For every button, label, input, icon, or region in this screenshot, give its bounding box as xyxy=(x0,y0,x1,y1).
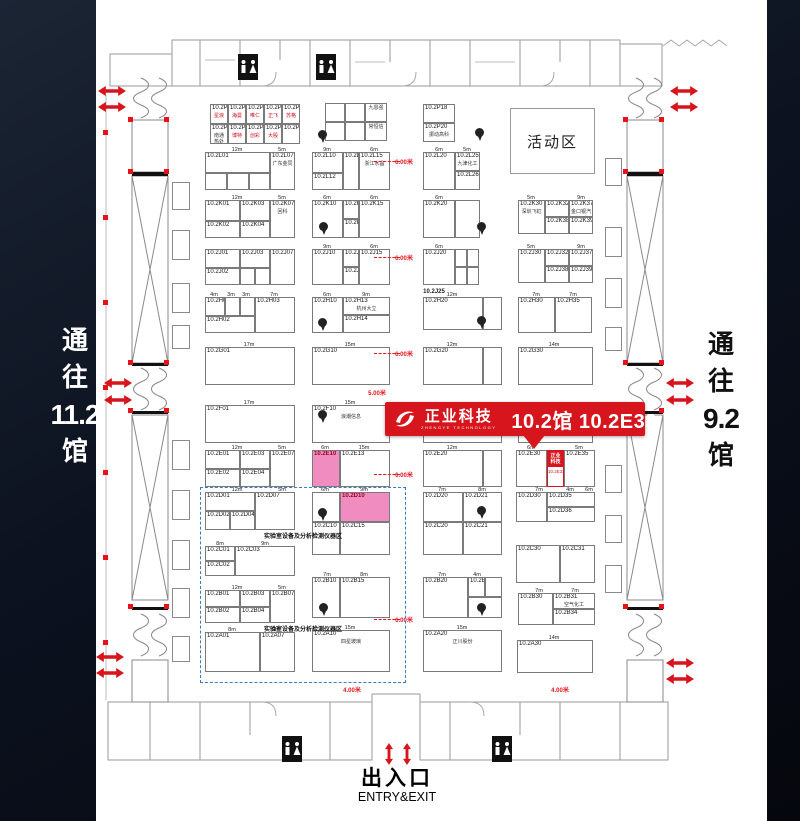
booth-company: 广东金同 xyxy=(271,161,294,167)
booth-id: 10.2F01 xyxy=(206,406,294,413)
booth-id: 10.2H35 xyxy=(556,298,591,305)
booth-id: 10.2P03 xyxy=(229,105,245,112)
booth-id: 10.2G01 xyxy=(206,348,294,355)
booth-10.2H01[interactable]: 10.2H01 xyxy=(205,297,225,316)
booth-10.2J39[interactable]: 10.2J39 xyxy=(569,266,593,283)
wall-marker xyxy=(128,360,133,365)
wall-marker xyxy=(164,408,169,413)
booth-10.2J01[interactable]: 10.2J01 xyxy=(205,249,240,268)
booth-id: 10.2K14 xyxy=(344,220,358,227)
booth-id: 10.2J03 xyxy=(241,250,269,257)
booth-10.2C31[interactable]: 10.2C31 xyxy=(560,545,595,583)
booth-10.2K04[interactable]: 10.2K04 xyxy=(240,221,270,238)
wall-marker xyxy=(128,408,133,413)
banner-pointer xyxy=(523,435,545,449)
booth-10.2B34[interactable]: 10.2B34 xyxy=(553,609,595,625)
booth-10.2H14[interactable]: 10.2H14 xyxy=(343,315,390,333)
booth-id: 10.2E02 xyxy=(206,470,239,477)
booth-id: 10.2J32 xyxy=(546,250,568,257)
booth-id: 10.2K02 xyxy=(206,222,239,229)
booth-10.2D35[interactable]: 10.2D35 xyxy=(547,492,595,507)
booth-id: 10.2J02 xyxy=(206,269,239,276)
booth-10.2E01[interactable]: 10.2E01 xyxy=(205,450,240,469)
booth-id: 10.2E35 xyxy=(565,451,594,458)
booth-id: 10.2P05 xyxy=(247,105,263,112)
booth-10.2A20[interactable]: 10.2A20正川股份 xyxy=(423,630,502,672)
booth-id: 10.2K15 xyxy=(360,201,389,208)
booth-unlabeled[interactable] xyxy=(172,283,190,313)
booth-10.2P10[interactable]: 10.2P10 xyxy=(282,124,300,144)
booth-10.2J10[interactable]: 10.2J10 xyxy=(312,249,343,285)
booth-10.2L13[interactable]: 10.2L13 xyxy=(343,152,359,190)
booth-company: 空气化工 xyxy=(554,602,594,608)
booth-unlabeled[interactable] xyxy=(172,182,190,210)
booth-10.2K37[interactable]: 10.2K37金口银汽 xyxy=(569,200,593,217)
booth-10.2L25[interactable]: 10.2L25九津化工 xyxy=(455,152,480,171)
wall-marker xyxy=(164,169,169,174)
booth-10.2P08[interactable]: 10.2P08大殷 xyxy=(264,124,282,144)
booth-company: 深圳飞虹 xyxy=(519,209,544,215)
booth-10.2E20[interactable]: 10.2E20 xyxy=(423,450,483,487)
booth-id: 10.2A30 xyxy=(518,641,592,648)
booth-unlabeled[interactable] xyxy=(605,515,622,543)
wall-marker xyxy=(103,215,108,220)
booth-10.2H20[interactable]: 10.2H20 xyxy=(423,297,483,330)
booth-id: 10.2E04 xyxy=(241,470,269,477)
booth-id: 10.2C31 xyxy=(561,546,594,553)
pillar-marker-icon xyxy=(477,222,486,231)
booth-10.2P18[interactable]: 10.2P18 xyxy=(423,104,455,123)
booth-id: 10.2H10 xyxy=(313,298,342,305)
restroom-icon xyxy=(492,736,512,762)
booth-id: 10.2P09 xyxy=(283,105,299,112)
pillar-marker-icon xyxy=(318,318,327,327)
booth-10.2K02[interactable]: 10.2K02 xyxy=(205,221,240,238)
booth-id: 10.2L13 xyxy=(344,153,358,160)
booth-company: 回科 xyxy=(271,209,294,215)
booth-unlabeled[interactable] xyxy=(172,636,190,662)
pillar-marker-icon xyxy=(318,130,327,139)
booth-id: 10.2J01 xyxy=(206,250,239,257)
booth-id: 10.2C20 xyxy=(424,523,462,530)
booth-id: 10.2H30 xyxy=(519,298,554,305)
aisle-dash xyxy=(374,619,400,620)
aisle-dash xyxy=(374,474,400,475)
booth-id: 10.2E01 xyxy=(206,451,239,458)
booth-id: 10.2D36 xyxy=(548,508,594,515)
booth-unlabeled[interactable] xyxy=(605,158,622,186)
booth-id: 10.2H14 xyxy=(344,316,389,323)
pillar-marker-icon xyxy=(318,410,327,419)
booth-id: 10.2P01 xyxy=(211,105,227,112)
booth-company: 正川股份 xyxy=(424,639,501,645)
booth-10.2L20[interactable]: 10.2L20 xyxy=(423,152,455,190)
booth-company: 星浪 xyxy=(211,113,227,119)
booth-unlabeled[interactable] xyxy=(325,122,345,141)
booth-unlabeled[interactable] xyxy=(172,230,190,260)
booth-id: 10.2G30 xyxy=(519,348,592,355)
booth-id: 10.2C30 xyxy=(517,546,559,553)
highlight-booth-name: 正业 科技 xyxy=(548,451,563,467)
booth-id: 10.2C21 xyxy=(464,523,501,530)
booth-id: 10.2K10 xyxy=(313,201,342,208)
booth-company: 杭州大立 xyxy=(344,306,389,312)
booth-id: 10.2L12 xyxy=(313,174,342,181)
booth-unlabeled[interactable] xyxy=(172,325,190,349)
booth-company: 九津化工 xyxy=(456,161,479,167)
wall-marker xyxy=(103,640,108,645)
booth-id: 10.2J30 xyxy=(519,250,544,257)
booth-10.2L10[interactable]: 10.2L10 xyxy=(312,152,343,173)
booth-10.2P03[interactable]: 10.2P03海曼 xyxy=(228,104,246,124)
wall-marker xyxy=(103,555,108,560)
wall-marker xyxy=(623,604,628,609)
booth-id: 10.2P02 xyxy=(211,125,227,132)
booth-id: 10.2H20 xyxy=(424,298,482,305)
booth-company: 正飞 xyxy=(265,113,281,119)
booth-10.2J30[interactable]: 10.2J30 xyxy=(518,249,545,283)
booth-unlabeled[interactable] xyxy=(485,577,502,597)
booth-id: 10.2J15 xyxy=(360,250,389,257)
booth-id: 10.2L20 xyxy=(424,153,454,160)
booth-unlabeled[interactable] xyxy=(605,465,622,493)
highlight-booth-id: 10.2E33 xyxy=(548,469,563,475)
booth-unlabeled[interactable]: 常恒信 xyxy=(365,122,387,141)
booth-10.2H10[interactable]: 10.2H10 xyxy=(312,297,343,333)
booth-10.2D30[interactable]: 10.2D30 xyxy=(516,492,547,522)
booth-id: 10.2J07 xyxy=(271,250,294,257)
booth-10.2K10[interactable]: 10.2K10 xyxy=(312,200,343,238)
wall-marker xyxy=(164,117,169,122)
booth-10.2J12[interactable]: 10.2J12 xyxy=(343,249,359,267)
booth-unlabeled[interactable] xyxy=(345,122,365,141)
booth-10.2E30[interactable]: 10.2E30 xyxy=(516,450,547,487)
booth-id: 10.2P06 xyxy=(247,125,263,132)
booth-company: 常恒信 xyxy=(366,124,386,130)
booth-10.2P06[interactable]: 10.2P06创彩 xyxy=(246,124,264,144)
booth-10.2B30[interactable]: 10.2B30 xyxy=(518,593,553,625)
wall-marker xyxy=(659,604,664,609)
booth-id: 10.2E03 xyxy=(241,451,269,458)
booth-company: 振动高科 xyxy=(424,132,454,138)
booth-id: 10.2H02 xyxy=(206,317,254,324)
booth-10.2J03[interactable]: 10.2J03 xyxy=(240,249,270,268)
booth-unlabeled[interactable] xyxy=(225,297,240,316)
booth-id: 10.2P04 xyxy=(229,125,245,132)
booth-unlabeled[interactable]: 九恩强 xyxy=(365,103,387,122)
booth-unlabeled[interactable] xyxy=(483,347,502,385)
booth-id: 10.2P20 xyxy=(424,124,454,131)
booth-unlabeled[interactable] xyxy=(483,450,502,487)
booth-unlabeled[interactable] xyxy=(227,173,249,190)
pillar-marker-icon xyxy=(318,508,327,517)
booth-unlabeled[interactable] xyxy=(172,540,190,570)
booth-unlabeled[interactable] xyxy=(605,565,622,593)
booth-id: 10.2D20 xyxy=(424,493,462,500)
booth-id: 10.2K32 xyxy=(546,201,568,208)
booth-id: 10.2L15 xyxy=(360,153,389,160)
booth-10.2P07[interactable]: 10.2P07正飞 xyxy=(264,104,282,124)
restroom-icon xyxy=(316,54,336,80)
booth-id: 10.2L07 xyxy=(271,153,294,160)
booth-10.2E35[interactable]: 10.2E35 xyxy=(564,450,595,487)
booth-company: 海曼 xyxy=(229,113,245,119)
booth-10.2J14[interactable]: 10.2J14 xyxy=(343,267,359,285)
booth-id: 10.2J37 xyxy=(570,250,592,257)
wall-marker xyxy=(128,169,133,174)
booth-10.2P20[interactable]: 10.2P20振动高科 xyxy=(423,123,455,142)
wall-marker xyxy=(103,300,108,305)
banner-hall-booth: 10.2馆 10.2E33 xyxy=(511,405,657,434)
wall-marker xyxy=(103,385,108,390)
booth-company: 唯仁 xyxy=(247,113,263,119)
booth-10.2K01[interactable]: 10.2K01 xyxy=(205,200,240,221)
booth-id: 10.2E30 xyxy=(517,451,546,458)
exhibition-floorplan: 10.2P01星浪10.2P03海曼10.2P05唯仁10.2P07正飞10.2… xyxy=(0,0,800,821)
booth-10.2K03[interactable]: 10.2K03 xyxy=(240,200,270,221)
restroom-icon xyxy=(238,54,258,80)
booth-10.2E04[interactable]: 10.2E04 xyxy=(240,469,270,487)
booth-10.2A30[interactable]: 10.2A30 xyxy=(517,640,593,673)
booth-company: 博特 xyxy=(229,133,245,139)
booth-id: 10.2K39 xyxy=(570,218,592,225)
wall-marker xyxy=(164,360,169,365)
booth-10.2B22[interactable]: 10.2B22 xyxy=(468,577,485,597)
wall-marker xyxy=(659,360,664,365)
aisle-dash xyxy=(374,161,400,162)
booth-10.2L07[interactable]: 10.2L07广东金同 xyxy=(270,152,295,190)
aisle-dash xyxy=(374,257,400,258)
booth-10.2H02[interactable]: 10.2H02 xyxy=(205,316,255,333)
booth-id: 10.2H03 xyxy=(256,298,294,305)
booth-company: 大殷 xyxy=(265,133,281,139)
booth-company: 苏格 xyxy=(283,113,299,119)
booth-10.2K14[interactable]: 10.2K14 xyxy=(343,219,359,238)
booth-unlabeled[interactable] xyxy=(605,278,622,308)
booth-id: 10.2L10 xyxy=(313,153,342,160)
booth-10.2J38[interactable]: 10.2J38 xyxy=(545,266,569,283)
booth-10.2K07[interactable]: 10.2K07回科 xyxy=(270,200,295,238)
to-hall-11-2-label: 通 往 11.2 馆 xyxy=(50,322,100,470)
booth-10.2K38[interactable]: 10.2K38 xyxy=(545,217,569,234)
booth-10.2H13[interactable]: 10.2H13杭州大立 xyxy=(343,297,390,315)
booth-unlabeled[interactable] xyxy=(455,267,467,285)
booth-unlabeled[interactable] xyxy=(172,440,190,470)
booth-10.2P01[interactable]: 10.2P01星浪 xyxy=(210,104,228,124)
booth-unlabeled[interactable] xyxy=(483,297,502,330)
brand-block: 正业科技 ZHENGYE TECHNOLOGY xyxy=(421,409,496,430)
booth-id: 10.2J39 xyxy=(570,267,592,274)
booth-id: 10.2E10 xyxy=(313,451,339,458)
booth-10.2B20[interactable]: 10.2B20 xyxy=(423,577,468,618)
booth-10.2J37[interactable]: 10.2J37 xyxy=(569,249,593,266)
booth-10.2E03[interactable]: 10.2E03 xyxy=(240,450,270,469)
booth-id: 10.2H01 xyxy=(206,298,224,305)
booth-id: 10.2K01 xyxy=(206,201,239,208)
booth-id: 10.2P08 xyxy=(265,125,281,132)
booth-id: 10.2J14 xyxy=(344,268,358,275)
booth-10.2P02[interactable]: 10.2P02南通热处 xyxy=(210,124,228,144)
booth-id: 10.2D30 xyxy=(517,493,546,500)
booth-id: 10.2P10 xyxy=(283,125,299,132)
booth-id: 10.2K04 xyxy=(241,222,269,229)
pillar-marker-icon xyxy=(319,603,328,612)
booth-10.2P05[interactable]: 10.2P05唯仁 xyxy=(246,104,264,124)
booth-id: 10.2B34 xyxy=(554,610,594,617)
wall-marker xyxy=(103,470,108,475)
wall-marker xyxy=(128,604,133,609)
booth-10.2H03[interactable]: 10.2H03 xyxy=(255,297,295,333)
booth-id: 10.2K03 xyxy=(241,201,269,208)
booth-10.2K39[interactable]: 10.2K39 xyxy=(569,217,593,234)
booth-10.2H30[interactable]: 10.2H30 xyxy=(518,297,555,333)
booth-10.2E13[interactable]: 10.2E13 xyxy=(340,450,390,487)
booth-10.2H35[interactable]: 10.2H35 xyxy=(555,297,592,333)
booth-10.2G20[interactable]: 10.2G20 xyxy=(423,347,483,385)
booth-company: 南通热处 xyxy=(211,133,227,144)
booth-id: 10.2K07 xyxy=(271,201,294,208)
booth-10.2D36[interactable]: 10.2D36 xyxy=(547,507,595,522)
booth-unlabeled[interactable] xyxy=(172,588,190,618)
booth-10.2P04[interactable]: 10.2P04博特 xyxy=(228,124,246,144)
booth-10.2J15[interactable]: 10.2J15 xyxy=(359,249,390,285)
booth-10.2K20[interactable]: 10.2K20 xyxy=(423,200,455,238)
booth-id: 10.2J38 xyxy=(546,267,568,274)
booth-id: 10.2A20 xyxy=(424,631,501,638)
booth-id: 10.2L26 xyxy=(456,172,479,179)
booth-unlabeled[interactable] xyxy=(255,268,270,285)
booth-10.2E10[interactable]: 10.2E10 xyxy=(312,450,340,487)
booth-id: 10.2K13 xyxy=(344,201,358,208)
booth-10.2L26[interactable]: 10.2L26 xyxy=(455,171,480,190)
booth-id: 10.2L01 xyxy=(206,153,269,160)
wall-marker xyxy=(128,117,133,122)
booth-unlabeled[interactable] xyxy=(605,227,622,257)
booth-id: 10.2J10 xyxy=(313,250,342,257)
booth-id: 10.2K20 xyxy=(424,201,454,208)
booth-id: 10.2E07 xyxy=(271,451,294,458)
wall-marker xyxy=(623,117,628,122)
booth-unlabeled[interactable] xyxy=(249,173,270,190)
pillar-marker-icon xyxy=(477,506,486,515)
booth-id: 10.2B30 xyxy=(519,594,552,601)
zhengye-banner[interactable]: 正业科技 ZHENGYE TECHNOLOGY 10.2馆 10.2E33 xyxy=(385,402,645,436)
wall-marker xyxy=(659,117,664,122)
restroom-icon xyxy=(282,736,302,762)
booth-unlabeled[interactable] xyxy=(345,103,365,122)
booth-unlabeled[interactable] xyxy=(325,103,345,122)
pillar-marker-icon xyxy=(475,128,484,137)
booth-10.2E02[interactable]: 10.2E02 xyxy=(205,469,240,487)
booth-id: 10.2P18 xyxy=(424,105,454,112)
zhengye-logo-icon xyxy=(393,407,417,431)
pillar-marker-icon xyxy=(319,222,328,231)
wall-marker xyxy=(659,408,664,413)
booth-id: 10.2P07 xyxy=(265,105,281,112)
booth-id: 10.2K30 xyxy=(519,201,544,208)
booth-id: 10.2G20 xyxy=(424,348,482,355)
booth-10.2K32[interactable]: 10.2K32 xyxy=(545,200,569,217)
brand-name-en: ZHENGYE TECHNOLOGY xyxy=(421,426,496,430)
booth-10.2G30[interactable]: 10.2G30 xyxy=(518,347,593,385)
pillar-marker-icon xyxy=(477,603,486,612)
booth-unlabeled[interactable] xyxy=(605,327,622,351)
booth-unlabeled[interactable] xyxy=(455,200,480,238)
wall-marker xyxy=(659,169,664,174)
booth-10.2E33[interactable]: 正业 科技10.2E33 xyxy=(547,450,564,487)
booth-unlabeled[interactable] xyxy=(240,268,255,285)
booth-company: 金口银汽 xyxy=(570,209,592,215)
booth-id: 10.2B31 xyxy=(554,594,594,601)
booth-10.2C21[interactable]: 10.2C21 xyxy=(463,522,502,555)
booth-10.2P09[interactable]: 10.2P09苏格 xyxy=(282,104,300,124)
wall-marker xyxy=(623,169,628,174)
booth-10.2E07[interactable]: 10.2E07 xyxy=(270,450,295,487)
booth-unlabeled[interactable] xyxy=(467,267,479,285)
booth-company: 创彩 xyxy=(247,133,263,139)
booth-id: 10.2B20 xyxy=(424,578,467,585)
booth-10.2B31[interactable]: 10.2B31空气化工 xyxy=(553,593,595,609)
booth-10.2G01[interactable]: 10.2G01 xyxy=(205,347,295,385)
booth-10.2D20[interactable]: 10.2D20 xyxy=(423,492,463,522)
lab-zone-outline xyxy=(200,487,406,683)
booth-unlabeled[interactable] xyxy=(467,249,479,267)
booth-10.2J20[interactable]: 10.2J20 xyxy=(423,249,455,285)
booth-id: 10.2E13 xyxy=(341,451,389,458)
brand-name: 正业科技 xyxy=(425,409,493,424)
booth-id: 10.2K37 xyxy=(570,201,592,208)
booth-10.2C30[interactable]: 10.2C30 xyxy=(516,545,560,583)
wall-marker xyxy=(103,130,108,135)
booth-id: 10.2K38 xyxy=(546,218,568,225)
booth-id: 10.2J12 xyxy=(344,250,358,257)
booth-10.2K15[interactable]: 10.2K15 xyxy=(359,200,390,238)
booth-unlabeled[interactable] xyxy=(240,297,255,316)
booth-id: 10.2L25 xyxy=(456,153,479,160)
booth-id: 10.2J20 xyxy=(424,250,454,257)
booth-unlabeled[interactable] xyxy=(455,249,467,267)
pillar-marker-icon xyxy=(477,316,486,325)
booth-10.2F01[interactable]: 10.2F01 xyxy=(205,405,295,443)
booth-10.2C20[interactable]: 10.2C20 xyxy=(423,522,463,555)
booth-10.2L01[interactable]: 10.2L01 xyxy=(205,152,270,173)
booth-id: 10.2D35 xyxy=(548,493,594,500)
booth-10.2J07[interactable]: 10.2J07 xyxy=(270,249,295,285)
wall-marker xyxy=(623,360,628,365)
booth-10.2J32[interactable]: 10.2J32 xyxy=(545,249,569,266)
aisle-dash xyxy=(374,353,400,354)
booth-company: 九恩强 xyxy=(366,105,386,111)
booth-unlabeled[interactable] xyxy=(205,173,227,190)
booth-id: 10.2H13 xyxy=(344,298,389,305)
booth-id: 10.2B22 xyxy=(469,578,484,585)
booth-id: 10.2E20 xyxy=(424,451,482,458)
booth-10.2L15[interactable]: 10.2L15浙江水晶 xyxy=(359,152,390,190)
booth-10.2K30[interactable]: 10.2K30深圳飞虹 xyxy=(518,200,545,234)
booth-unlabeled[interactable] xyxy=(172,490,190,520)
booth-10.2J02[interactable]: 10.2J02 xyxy=(205,268,240,285)
to-hall-9-2-label: 通 往 9.2 馆 xyxy=(698,326,744,474)
booth-10.2L12[interactable]: 10.2L12 xyxy=(312,173,343,190)
booth-10.2K13[interactable]: 10.2K13 xyxy=(343,200,359,219)
wall-marker xyxy=(164,604,169,609)
booth-id: 10.2D21 xyxy=(464,493,501,500)
